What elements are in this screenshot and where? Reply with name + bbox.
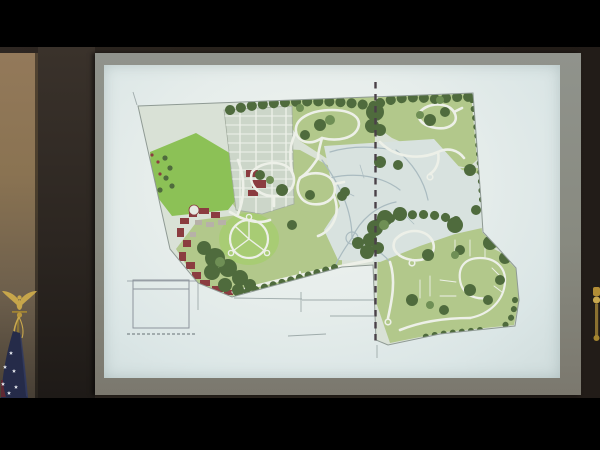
projection-screen	[95, 53, 581, 395]
projected-slide	[104, 65, 560, 378]
letterbox-bottom	[0, 398, 600, 450]
video-frame	[0, 0, 600, 450]
wall-left-dark	[38, 47, 95, 398]
wall-left-tan-strip	[0, 53, 38, 398]
letterbox-top	[0, 0, 600, 47]
